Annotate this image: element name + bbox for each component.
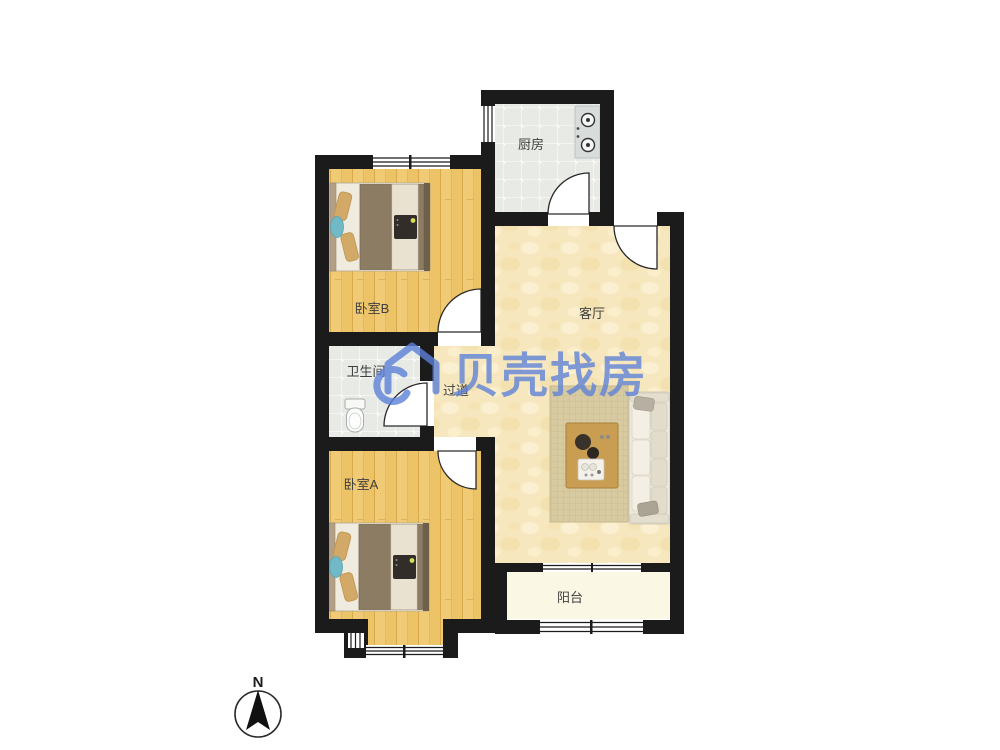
wall-bathroom-bottom [315,437,434,451]
wall-kitchen-right [600,90,614,226]
wall-bedroom-b-bottom [315,332,438,346]
floorplan-svg: 厨房 客厅 卧室B 卫生间 过道 卧室A 阳台 贝壳找房 N [0,0,1000,750]
compass-north-label: N [253,674,264,691]
wall-kitchen-bottom-left [481,212,548,226]
balcony-window [540,620,643,634]
balcony-sliding-door [543,563,641,572]
kitchen-label: 厨房 [518,137,544,152]
wall-bedroom-b-top-left [315,155,373,169]
balcony-floor [507,572,670,619]
wall-balcony-bottom-right [643,620,684,634]
wall-left-outer [315,155,329,633]
bedroom-a-label: 卧室A [344,477,379,492]
bedroom-a-bay-floor [357,619,447,648]
floorplan-canvas: 厨房 客厅 卧室B 卫生间 过道 卧室A 阳台 贝壳找房 N [0,0,1000,750]
toilet [345,399,365,432]
wall-bedroom-a-right [481,451,495,633]
bay-window [366,645,443,658]
bed-bedroom-b [330,183,430,271]
coffee-table [566,423,618,488]
bed-bedroom-a [329,523,429,611]
wall-living-balcony-right [641,563,670,572]
living-room-label: 客厅 [579,306,605,321]
wall-bedroom-b-right [481,142,495,346]
wall-living-balcony-left [495,563,543,572]
wall-kitchen-top [481,90,614,104]
wall-balcony-bottom-left [495,620,540,634]
wall-bathroom-right-lower [420,426,434,451]
wall-bedroom-a-top [476,437,495,451]
compass: N [235,674,281,737]
stove [575,106,600,158]
balcony-label: 阳台 [557,590,583,605]
sofa [629,392,670,524]
kitchen-window [481,106,495,142]
bedroom-b-window [373,155,450,169]
wall-bedroom-b-bottom-corner [481,332,495,346]
bedroom-b-label: 卧室B [355,301,390,316]
wall-bottom-bedroom-a-right [455,619,495,633]
bay-side-window [348,633,364,648]
wall-right-outer [670,212,684,634]
watermark-brand-text: 贝壳找房 [452,349,648,402]
wall-kitchen-bottom-right [589,212,614,226]
